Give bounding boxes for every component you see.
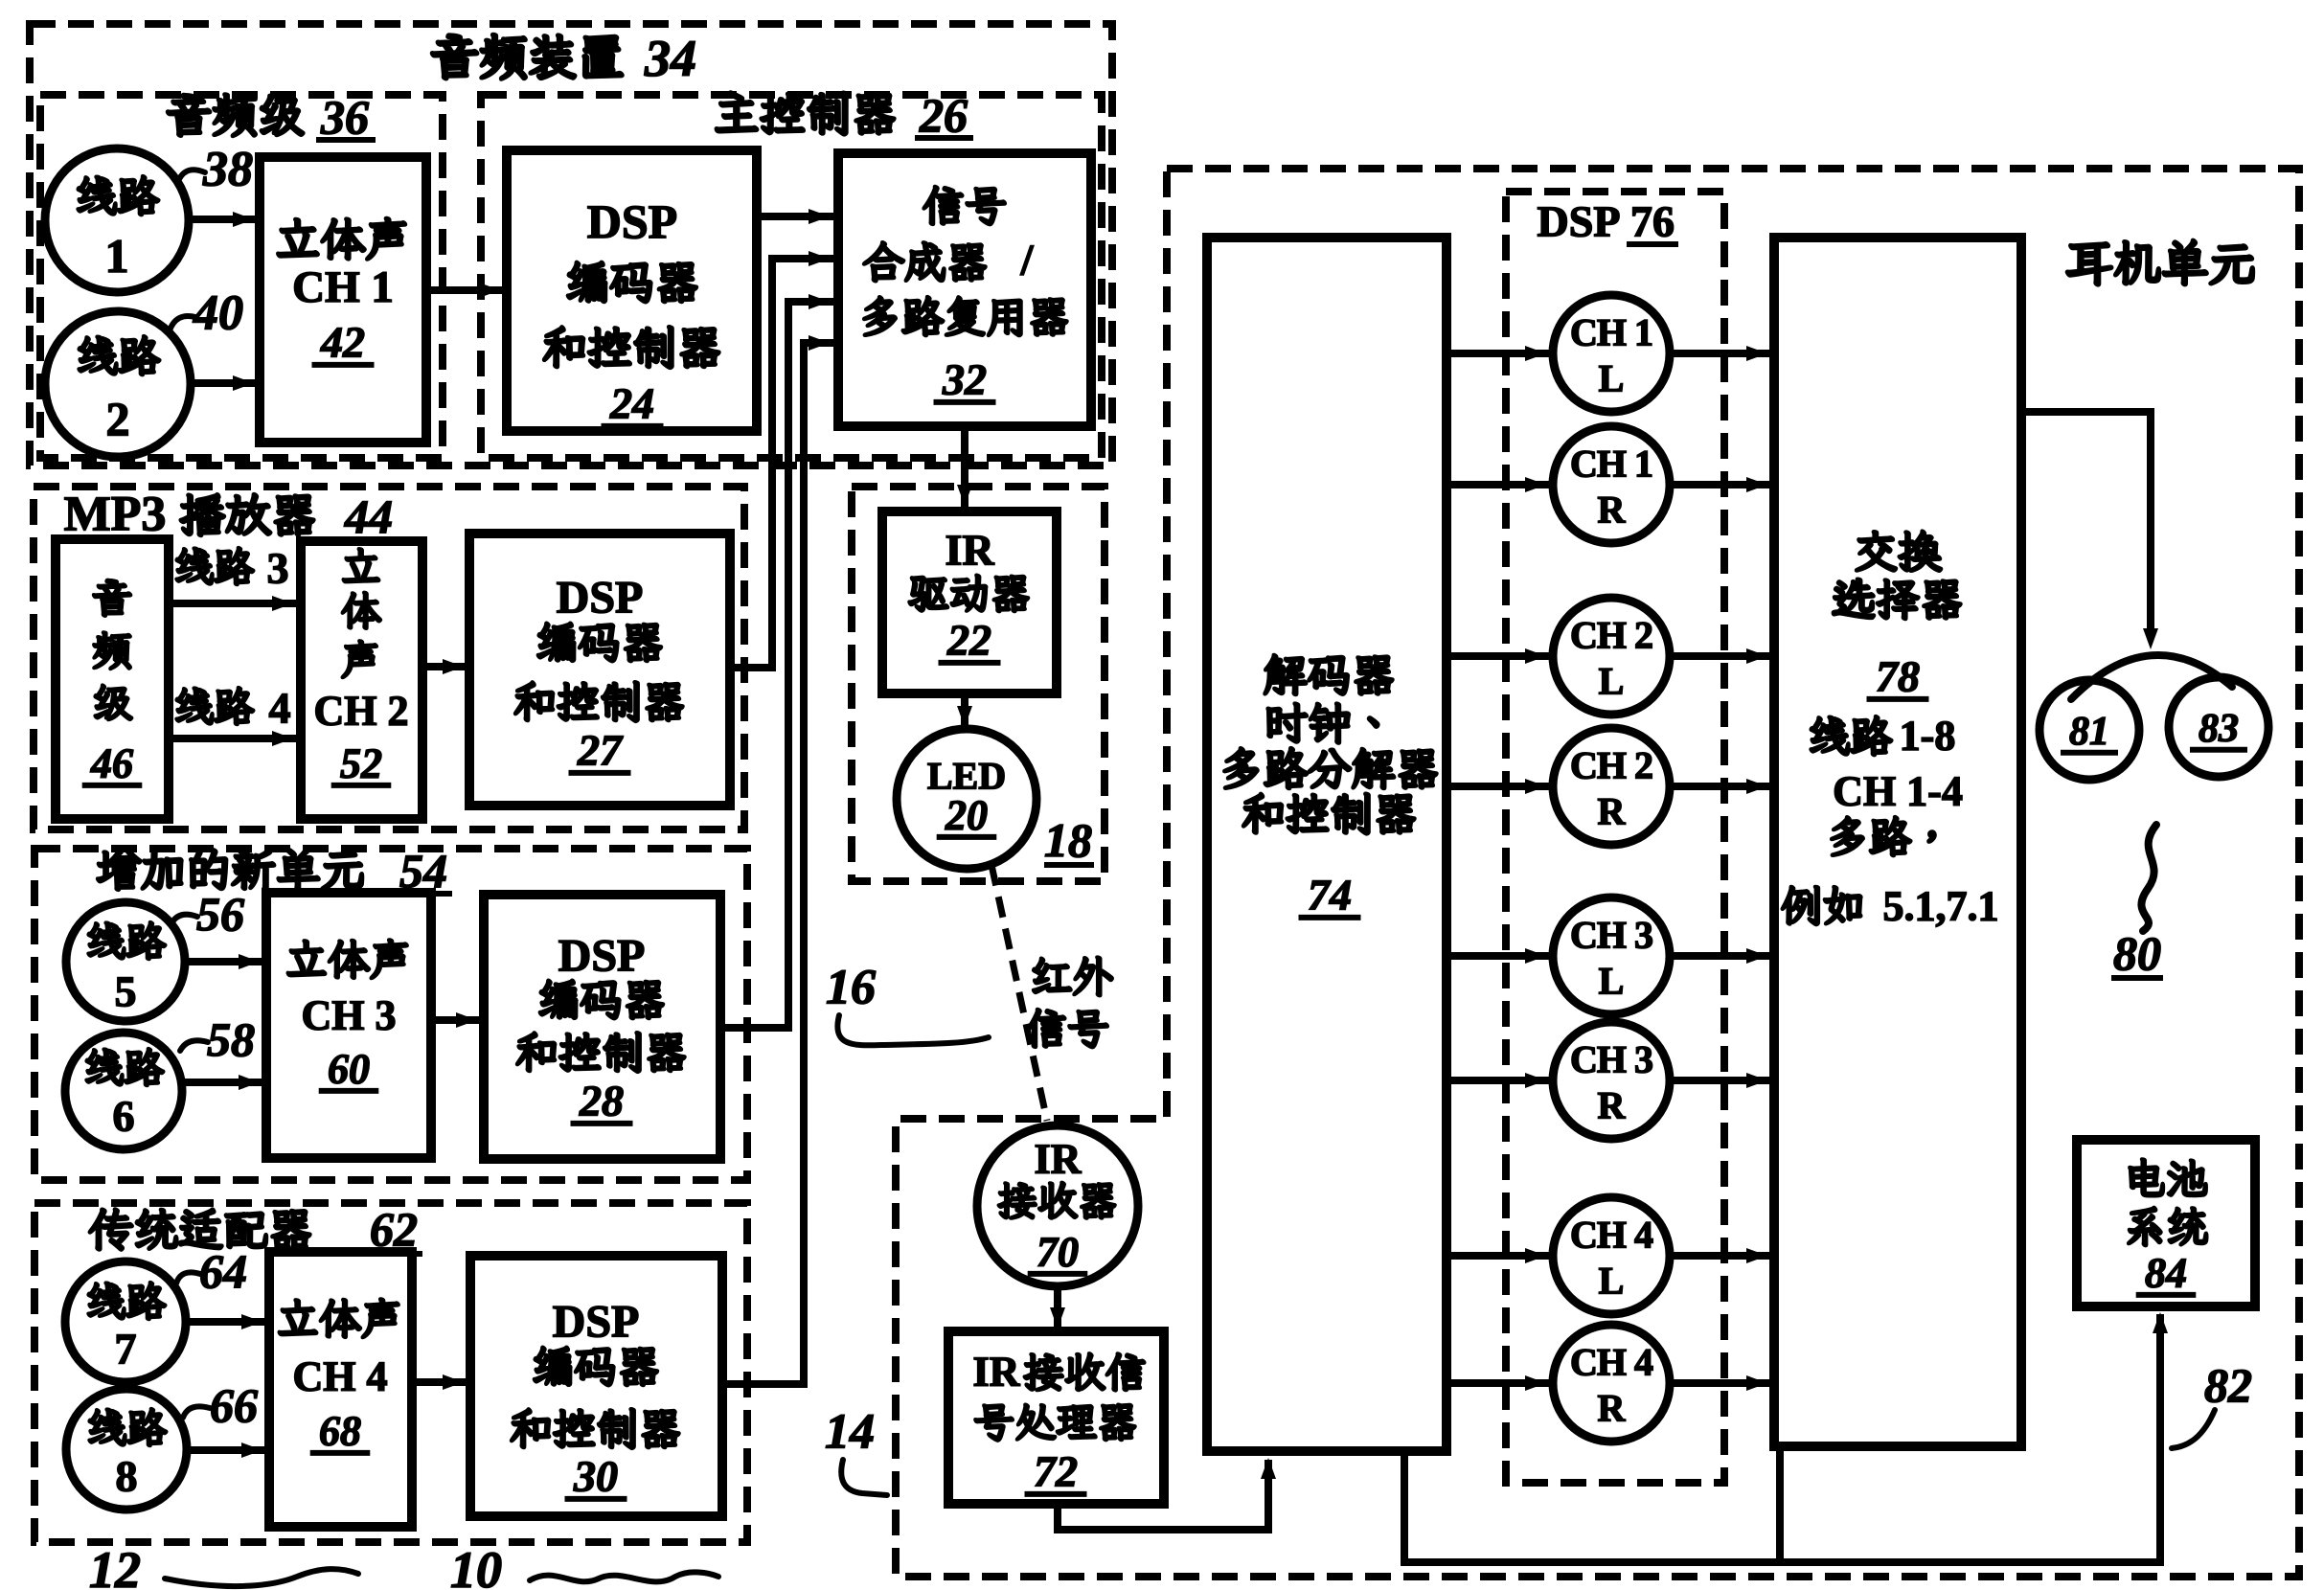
svg-text:5.1,7.1: 5.1,7.1 [1883, 883, 1999, 930]
svg-text:CH 3: CH 3 [1570, 914, 1652, 957]
svg-text:R: R [1598, 790, 1627, 833]
svg-text:DSP: DSP [587, 194, 677, 248]
svg-text:58: 58 [207, 1012, 255, 1066]
svg-text:22: 22 [946, 616, 991, 665]
svg-text:CH 2: CH 2 [1570, 744, 1652, 787]
svg-text:CH 4: CH 4 [293, 1353, 388, 1400]
svg-text:46: 46 [90, 740, 133, 787]
svg-text:80: 80 [2113, 926, 2161, 980]
svg-text:IR: IR [1035, 1136, 1082, 1183]
svg-text:56: 56 [196, 887, 244, 941]
svg-text:MP3: MP3 [64, 488, 167, 542]
svg-text:CH 1: CH 1 [1570, 443, 1652, 486]
svg-text:DSP: DSP [1538, 197, 1621, 246]
svg-text:54: 54 [399, 844, 447, 897]
svg-text:78: 78 [1876, 652, 1920, 701]
svg-text:R: R [1598, 1084, 1627, 1127]
svg-text:CH 1: CH 1 [292, 262, 394, 312]
svg-text:IR: IR [973, 1349, 1021, 1396]
svg-text:82: 82 [2204, 1358, 2252, 1412]
svg-text:CH 2: CH 2 [314, 688, 409, 735]
svg-text:10: 10 [450, 1541, 502, 1590]
svg-text:84: 84 [2145, 1250, 2187, 1297]
svg-text:81: 81 [2069, 710, 2109, 754]
svg-text:DSP: DSP [553, 1297, 640, 1348]
svg-text:26: 26 [919, 88, 968, 142]
svg-text:8: 8 [116, 1452, 138, 1501]
svg-text:7: 7 [115, 1325, 137, 1374]
svg-text:34: 34 [644, 30, 696, 87]
svg-text:32: 32 [942, 355, 987, 404]
svg-text:68: 68 [319, 1408, 361, 1455]
svg-text:64: 64 [199, 1244, 247, 1298]
svg-text:R: R [1598, 1387, 1627, 1430]
svg-text:L: L [1599, 1260, 1625, 1303]
svg-text:30: 30 [573, 1452, 618, 1501]
svg-text:74: 74 [1308, 871, 1352, 920]
svg-text:1-8: 1-8 [1900, 713, 1956, 760]
svg-text:52: 52 [340, 740, 382, 787]
svg-text:L: L [1599, 960, 1625, 1003]
svg-text:38: 38 [202, 143, 253, 197]
svg-text:CH 3: CH 3 [1570, 1038, 1652, 1081]
svg-text:28: 28 [579, 1077, 624, 1125]
svg-text:CH 1: CH 1 [1570, 311, 1652, 354]
svg-text:CH 2: CH 2 [1570, 614, 1652, 657]
svg-text:L: L [1599, 357, 1625, 400]
svg-text:DSP: DSP [558, 931, 646, 982]
svg-text:16: 16 [826, 961, 876, 1015]
svg-text:L: L [1599, 660, 1625, 703]
svg-text:40: 40 [193, 286, 243, 341]
svg-text:24: 24 [609, 379, 654, 428]
svg-text:2: 2 [106, 392, 130, 445]
svg-text:60: 60 [328, 1046, 370, 1093]
svg-text:/: / [1020, 236, 1035, 284]
svg-text:3: 3 [267, 544, 289, 593]
svg-text:5: 5 [115, 967, 137, 1016]
svg-text:66: 66 [210, 1378, 258, 1432]
svg-text:CH 3: CH 3 [302, 992, 397, 1039]
svg-text:IR: IR [945, 526, 994, 575]
svg-text:70: 70 [1037, 1229, 1079, 1276]
svg-text:36: 36 [320, 90, 369, 144]
svg-text:4: 4 [269, 684, 291, 733]
svg-text:CH 4: CH 4 [1570, 1214, 1653, 1257]
svg-text:DSP: DSP [557, 573, 644, 624]
svg-text:1: 1 [105, 229, 129, 283]
svg-text:27: 27 [577, 726, 624, 775]
svg-text:83: 83 [2199, 707, 2239, 751]
svg-text:42: 42 [320, 318, 365, 367]
svg-text:CH 1-4: CH 1-4 [1833, 768, 1963, 815]
svg-text:R: R [1598, 488, 1627, 532]
svg-text:62: 62 [370, 1202, 418, 1256]
svg-text:18: 18 [1044, 813, 1092, 867]
svg-text:14: 14 [825, 1405, 875, 1460]
svg-text:76: 76 [1630, 197, 1675, 246]
svg-text:72: 72 [1034, 1447, 1078, 1496]
svg-text:12: 12 [89, 1541, 141, 1590]
svg-text:CH 4: CH 4 [1570, 1341, 1653, 1384]
svg-text:20: 20 [945, 792, 988, 839]
svg-text:6: 6 [113, 1092, 135, 1141]
svg-text:44: 44 [344, 489, 393, 543]
